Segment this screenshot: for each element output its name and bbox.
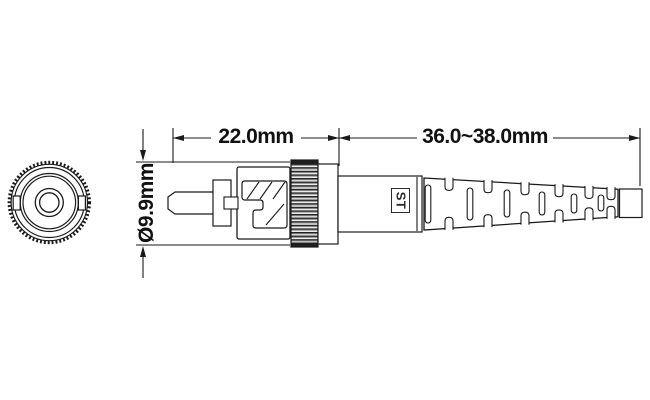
boot-notch xyxy=(555,210,563,223)
boot-notch xyxy=(484,180,492,193)
ferrule xyxy=(168,192,214,214)
arrowhead-right-icon xyxy=(629,135,640,141)
arrowhead-right-icon xyxy=(328,135,339,141)
arrowhead-left-icon xyxy=(173,135,184,141)
boot-notch xyxy=(585,208,593,221)
boot-slot xyxy=(467,188,473,220)
knurled-coupling-ring xyxy=(291,160,318,247)
boot-slot xyxy=(571,194,577,213)
knurled-ring-top-cap xyxy=(292,161,318,165)
boot-slot xyxy=(598,195,604,211)
bayonet-slot-left xyxy=(13,196,20,210)
dimension-label-boot-length: 36.0~38.0mm xyxy=(417,126,553,147)
boot-notch xyxy=(484,215,492,228)
connector-type-marking-box: ST xyxy=(391,188,410,213)
bayonet-slot-right xyxy=(78,196,85,210)
connector-type-label: ST xyxy=(394,192,407,210)
boot-slot xyxy=(539,192,545,215)
boot-notch xyxy=(521,182,529,195)
boot-slot xyxy=(425,185,431,223)
dimension-label-body-length: 22.0mm xyxy=(211,126,301,147)
boot-notch xyxy=(607,206,615,219)
boot-notch xyxy=(555,184,563,197)
boot-notch xyxy=(521,212,529,225)
boot-notch xyxy=(607,187,615,200)
boot-slot xyxy=(504,190,510,217)
boot-notch xyxy=(445,217,453,230)
knurled-ring-bottom-cap xyxy=(292,243,318,247)
rear-collar xyxy=(318,164,338,244)
front-view xyxy=(9,163,89,243)
alignment-key xyxy=(224,197,238,209)
dimension-label-diameter: Ø9.9mm xyxy=(135,159,159,247)
boot-notch xyxy=(585,186,593,199)
arrowhead-left-icon xyxy=(339,135,350,141)
connector-technical-drawing xyxy=(0,0,650,400)
boot-notch xyxy=(445,178,453,191)
boot-tip-barrel xyxy=(620,189,643,218)
arrowhead-up-icon xyxy=(140,246,146,257)
